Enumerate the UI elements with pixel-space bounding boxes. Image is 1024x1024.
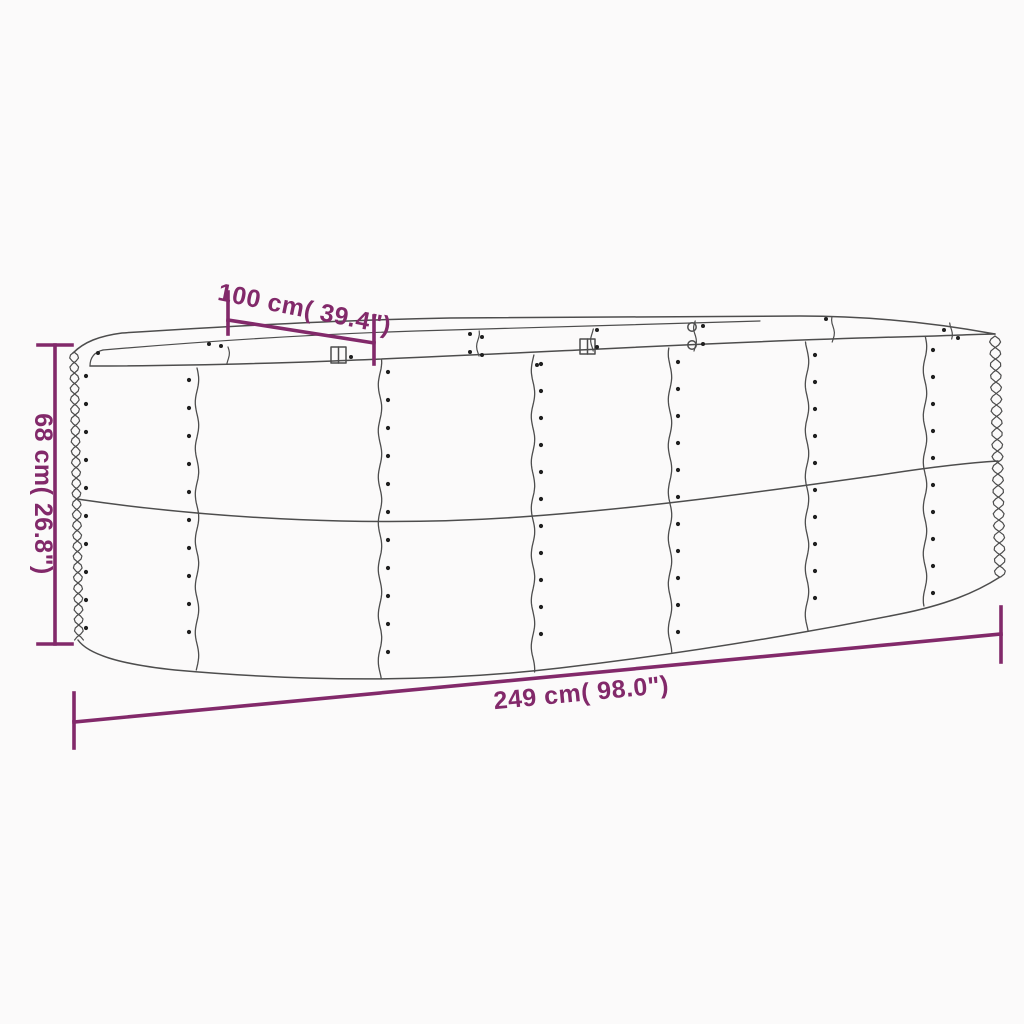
width-dimension: 100 cm( 39.4") xyxy=(216,278,394,364)
planter-drawing xyxy=(70,316,1006,679)
length-dimension-label: 249 cm( 98.0") xyxy=(492,671,670,715)
front-top-edge xyxy=(90,334,995,366)
diagram-canvas: 100 cm( 39.4") 68 cm( 26.8") 249 cm( 98.… xyxy=(0,0,1024,1024)
rivets xyxy=(84,317,960,654)
panel-seams xyxy=(70,317,1006,679)
connector-bracket xyxy=(580,339,595,354)
bottom-edge xyxy=(78,577,1000,679)
mid-rail xyxy=(77,461,998,521)
height-dimension-label: 68 cm( 26.8") xyxy=(29,413,57,575)
dimension-diagram: 100 cm( 39.4") 68 cm( 26.8") 249 cm( 98.… xyxy=(0,0,1024,1024)
height-dimension: 68 cm( 26.8") xyxy=(29,345,72,644)
rim-back-edge xyxy=(73,316,995,353)
length-dimension: 249 cm( 98.0") xyxy=(74,607,1001,748)
